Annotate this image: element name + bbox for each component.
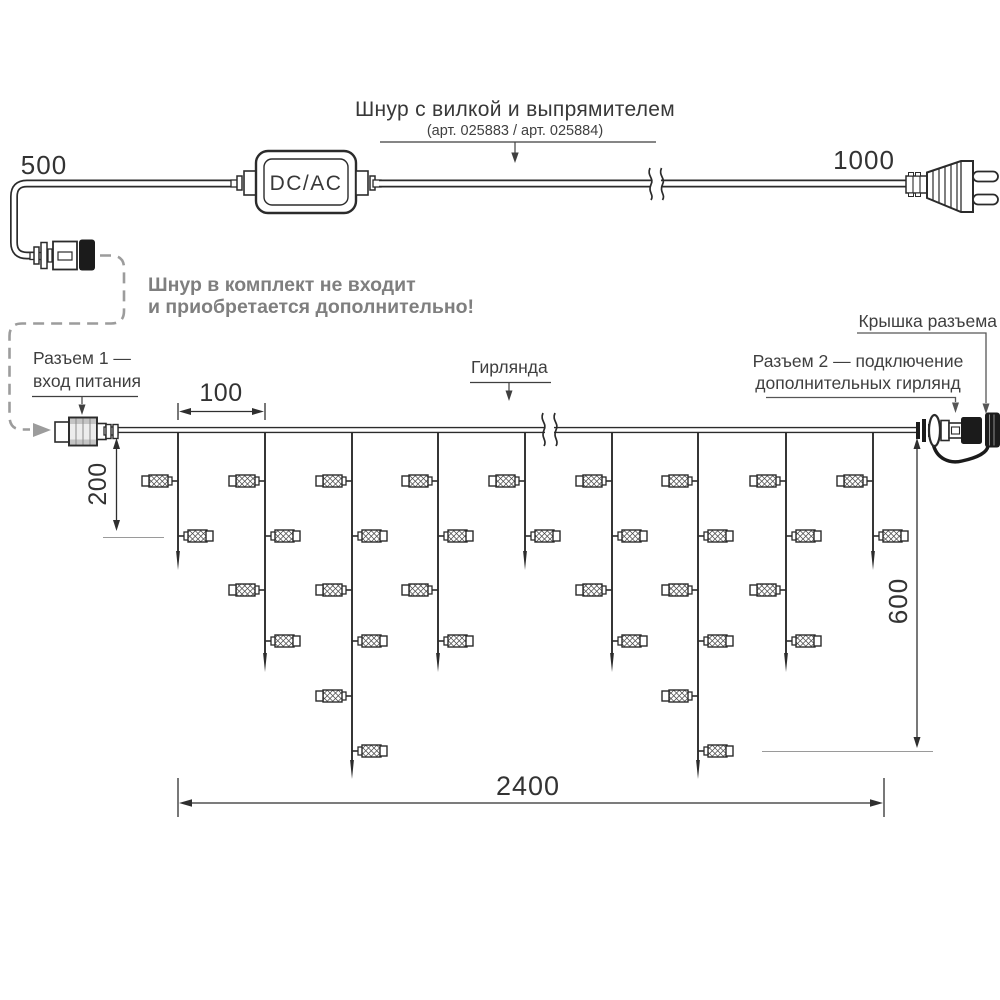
bulb-left [402, 584, 438, 596]
bulb-left [229, 475, 265, 487]
bulb-left [662, 690, 698, 702]
bulb-left [576, 475, 612, 487]
bulb-left [750, 584, 786, 596]
length-1000-label: 1000 [833, 145, 895, 175]
bulb-left [316, 475, 352, 487]
plug-prong-top [973, 172, 998, 182]
bulb-left [837, 475, 873, 487]
dim-100-label: 100 [199, 379, 242, 407]
garland-diagram: DC/AC 500 1000 Ш [0, 0, 1000, 1000]
bulb-left [316, 690, 352, 702]
bulb-left [489, 475, 525, 487]
connector1-label-line2: вход питания [33, 371, 141, 391]
note-line2: и приобретается дополнительно! [148, 296, 474, 318]
bulb-left [229, 584, 265, 596]
connector2-body [961, 417, 982, 444]
connector2-label-line2: дополнительных гирлянд [755, 373, 960, 393]
connector-cap [985, 413, 1000, 448]
cap-label: Крышка разъема [858, 311, 997, 331]
bulb-left [402, 475, 438, 487]
cord-title: Шнур с вилкой и выпрямителем [355, 98, 675, 121]
bulb-left [576, 584, 612, 596]
dim-600-label: 600 [883, 578, 913, 624]
bulb-left [316, 584, 352, 596]
note-line1: Шнур в комплект не входит [148, 274, 416, 296]
dim-200-label: 200 [84, 462, 112, 505]
bulb-left [142, 475, 178, 487]
garland-label: Гирлянда [471, 357, 548, 377]
length-500-label: 500 [21, 150, 67, 180]
cord-subtitle: (арт. 025883 / арт. 025884) [427, 123, 603, 139]
connector1-label-line1: Разъем 1 — [33, 348, 131, 368]
bulb-left [662, 584, 698, 596]
connector2-label-line1: Разъем 2 — подключение [753, 351, 964, 371]
bulb-left [662, 475, 698, 487]
dc-ac-label: DC/AC [270, 172, 343, 195]
connector-cap-dark [79, 240, 95, 271]
bulb-left [750, 475, 786, 487]
plug-prong-bottom [973, 195, 998, 205]
dim-2400-label: 2400 [496, 771, 560, 801]
